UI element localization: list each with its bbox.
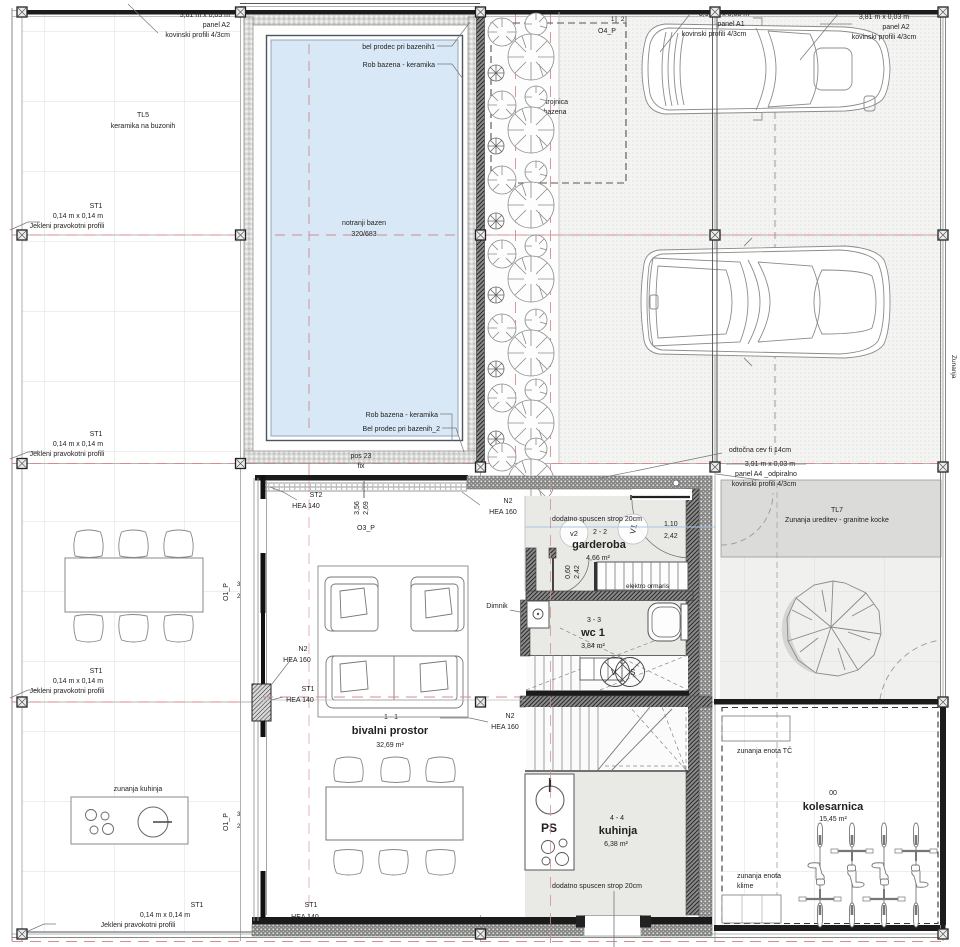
svg-text:V: V <box>611 668 617 677</box>
svg-text:panel A2: panel A2 <box>882 24 909 31</box>
svg-text:Jekleni pravokotni profili: Jekleni pravokotni profili <box>101 922 176 929</box>
svg-text:ST1: ST1 <box>302 686 315 693</box>
svg-text:HEA 160: HEA 160 <box>283 657 311 664</box>
svg-text:Zunanja ureditev - granitne ko: Zunanja ureditev - granitne kocke <box>785 517 889 524</box>
svg-text:HEA 140: HEA 140 <box>286 697 314 704</box>
svg-text:3 - 3: 3 - 3 <box>587 617 601 624</box>
svg-text:panel A4 _odpiralno: panel A4 _odpiralno <box>735 471 797 478</box>
svg-text:3,91 m x 0,03 m: 3,91 m x 0,03 m <box>745 461 795 468</box>
svg-text:Rob bazena - keramika: Rob bazena - keramika <box>363 62 435 69</box>
svg-text:2,42: 2,42 <box>664 533 678 540</box>
svg-text:3,81 m x 0,03 m: 3,81 m x 0,03 m <box>859 14 909 21</box>
svg-text:0,60: 0,60 <box>565 565 572 579</box>
svg-text:TL5: TL5 <box>137 112 149 119</box>
svg-text:3,91 m x 0,03 m: 3,91 m x 0,03 m <box>699 11 749 18</box>
svg-text:O3_P: O3_P <box>357 525 375 532</box>
svg-text:HEA 140: HEA 140 <box>292 503 320 510</box>
svg-text:N2: N2 <box>506 713 515 720</box>
svg-text:3,56: 3,56 <box>354 501 361 515</box>
svg-text:klime: klime <box>737 883 753 890</box>
svg-text:Dimnik: Dimnik <box>486 603 508 610</box>
svg-text:Jekleni pravokotni profili: Jekleni pravokotni profili <box>30 223 105 230</box>
svg-text:wc 1: wc 1 <box>580 627 605 639</box>
svg-text:keramika na buzonih: keramika na buzonih <box>111 123 176 130</box>
svg-text:odtočna cev fi 14cm: odtočna cev fi 14cm <box>729 447 791 454</box>
svg-text:fix: fix <box>358 463 366 470</box>
svg-text:1 - 1: 1 - 1 <box>384 714 398 721</box>
svg-text:pos 23: pos 23 <box>350 453 371 460</box>
svg-text:N2: N2 <box>299 646 308 653</box>
svg-text:ST1: ST1 <box>191 902 204 909</box>
svg-text:kovinski profili 4/3cm: kovinski profili 4/3cm <box>682 31 747 38</box>
svg-text:HEA 160: HEA 160 <box>491 724 519 731</box>
svg-text:bel prodec pri bazenih1: bel prodec pri bazenih1 <box>362 44 435 51</box>
svg-text:0,14 m x 0,14 m: 0,14 m x 0,14 m <box>53 441 103 448</box>
svg-text:2,69: 2,69 <box>363 501 370 515</box>
svg-text:Bel prodec pri bazenih_2: Bel prodec pri bazenih_2 <box>363 426 441 433</box>
svg-text:O4_P: O4_P <box>598 28 616 35</box>
svg-text:kolesarnica: kolesarnica <box>803 801 864 813</box>
svg-text:6,38 m²: 6,38 m² <box>604 841 628 848</box>
svg-text:32,69 m²: 32,69 m² <box>376 742 404 749</box>
svg-text:zunanja kuhinja: zunanja kuhinja <box>114 786 163 793</box>
svg-text:4,66 m²: 4,66 m² <box>586 555 610 562</box>
svg-text:kuhinja: kuhinja <box>599 825 638 837</box>
svg-text:Jekleni pravokotni profili: Jekleni pravokotni profili <box>30 451 105 458</box>
svg-text:HEA 160: HEA 160 <box>489 509 517 516</box>
svg-text:ST1: ST1 <box>305 902 318 909</box>
svg-text:v2: v2 <box>570 529 578 538</box>
svg-text:3,81 m x 0,03 m: 3,81 m x 0,03 m <box>180 12 230 19</box>
svg-text:ST1: ST1 <box>90 431 103 438</box>
svg-text:dodatno spuscen strop 20cm: dodatno spuscen strop 20cm <box>552 516 642 523</box>
svg-text:PS: PS <box>541 821 557 835</box>
svg-text:O1_P: O1_P <box>223 813 230 831</box>
svg-text:garderoba: garderoba <box>572 539 627 551</box>
svg-text:3,84 m²: 3,84 m² <box>581 643 605 650</box>
svg-text:zunanja enota TČ: zunanja enota TČ <box>737 746 792 755</box>
svg-text:kovinski profili 4/3cm: kovinski profili 4/3cm <box>165 32 230 39</box>
svg-text:00: 00 <box>829 790 837 797</box>
svg-text:Jekleni pravokotni profili: Jekleni pravokotni profili <box>30 688 105 695</box>
svg-text:0,14 m x 0,14 m: 0,14 m x 0,14 m <box>53 678 103 685</box>
svg-text:15,45 m²: 15,45 m² <box>819 816 847 823</box>
svg-text:0,14 m x 0,14 m: 0,14 m x 0,14 m <box>53 213 103 220</box>
svg-text:elektro ormaris: elektro ormaris <box>626 583 670 590</box>
svg-text:ST2: ST2 <box>310 492 323 499</box>
svg-text:kovinski profili 4/3cm: kovinski profili 4/3cm <box>852 34 917 41</box>
svg-text:kovinski profili 4/3cm: kovinski profili 4/3cm <box>732 481 797 488</box>
svg-text:O1_P: O1_P <box>223 583 230 601</box>
svg-text:S: S <box>630 668 635 677</box>
svg-text:2 - 2: 2 - 2 <box>593 529 607 536</box>
svg-text:Zunanja: Zunanja <box>950 355 957 379</box>
svg-text:N2: N2 <box>504 498 513 505</box>
svg-text:320/683: 320/683 <box>351 231 376 238</box>
svg-text:Rob bazena - keramika: Rob bazena - keramika <box>366 412 438 419</box>
svg-text:ST1: ST1 <box>90 668 103 675</box>
svg-text:notranji bazen: notranji bazen <box>342 220 386 227</box>
svg-text:ST1: ST1 <box>90 203 103 210</box>
svg-text:0,14 m x 0,14 m: 0,14 m x 0,14 m <box>140 912 190 919</box>
svg-text:dodatno spuscen strop 20cm: dodatno spuscen strop 20cm <box>552 883 642 890</box>
svg-text:2,42: 2,42 <box>574 565 581 579</box>
svg-text:TL7: TL7 <box>831 507 843 514</box>
svg-text:panel A2: panel A2 <box>203 22 230 29</box>
svg-text:HEA 140: HEA 140 <box>291 914 319 921</box>
svg-text:bivalni prostor: bivalni prostor <box>352 725 429 737</box>
svg-text:panel A1: panel A1 <box>717 21 744 28</box>
svg-text:zunanja enota: zunanja enota <box>737 873 781 880</box>
svg-text:4 - 4: 4 - 4 <box>610 815 624 822</box>
